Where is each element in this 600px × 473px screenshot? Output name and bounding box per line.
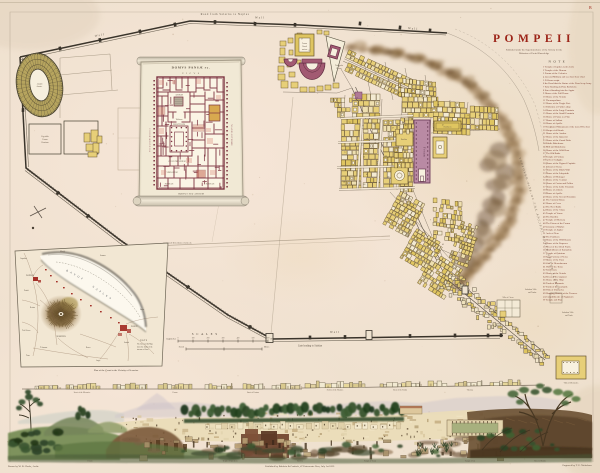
- svg-text:Forum: Forum: [88, 461, 93, 463]
- svg-text:Published by Baldwin & Cradock: Published by Baldwin & Cradock, 47 Pater…: [265, 465, 335, 468]
- svg-text:Basilica: Basilica: [401, 139, 407, 141]
- svg-text:Engraved by T. E. Nicholson.: Engraved by T. E. Nicholson.: [562, 464, 592, 467]
- svg-text:54: 54: [453, 255, 455, 257]
- svg-text:27: 27: [301, 38, 303, 40]
- svg-text:9: 9: [344, 152, 345, 154]
- svg-text:Plan of the Coast in the Vicin: Plan of the Coast in the Vicinity of Ves…: [94, 369, 138, 372]
- svg-text:300: 300: [222, 337, 225, 339]
- svg-text:1: 1: [365, 105, 366, 107]
- svg-text:V I C V S: V I C V S: [182, 72, 200, 75]
- svg-text:47: 47: [366, 174, 368, 176]
- svg-text:Diffusion of Useful Knowledge: Diffusion of Useful Knowledge: [519, 52, 549, 55]
- svg-text:32: 32: [360, 65, 362, 67]
- svg-text:62: 62: [363, 156, 365, 158]
- svg-text:0: 0: [178, 337, 179, 339]
- svg-text:PERISTYLIUM: PERISTYLIUM: [173, 124, 185, 126]
- svg-text:Resina: Resina: [30, 307, 35, 309]
- svg-text:PORTICUS: PORTICUS: [165, 184, 174, 186]
- svg-text:500: 500: [252, 337, 255, 339]
- svg-text:Suburban Villa: Suburban Villa: [525, 289, 537, 291]
- svg-text:N O T E: N O T E: [140, 340, 148, 342]
- svg-text:Thermae: Thermae: [467, 390, 474, 392]
- svg-text:21: 21: [422, 98, 424, 100]
- svg-text:and Tomb: and Tomb: [565, 315, 573, 317]
- svg-text:Scafati: Scafati: [124, 341, 129, 344]
- svg-text:Villa of Cicero: Villa of Cicero: [502, 296, 513, 299]
- svg-text:58: 58: [388, 176, 390, 178]
- svg-text:27: 27: [392, 128, 394, 130]
- svg-text:100: 100: [192, 337, 195, 339]
- svg-text:Suburban Villa: Suburban Villa: [562, 312, 574, 314]
- svg-text:HORTUS SEU ATRIUM: HORTUS SEU ATRIUM: [178, 193, 204, 196]
- svg-text:Vegetable: Vegetable: [41, 135, 49, 138]
- svg-text:streams of Lava: streams of Lava: [137, 348, 149, 351]
- svg-text:N O T E: N O T E: [548, 60, 565, 64]
- svg-text:200: 200: [207, 337, 210, 339]
- svg-text:Basilica: Basilica: [297, 461, 303, 463]
- svg-text:Pantheon: Pantheon: [444, 126, 452, 128]
- svg-text:Temple of Venus: Temple of Venus: [364, 460, 376, 463]
- svg-text:The lines on this Map: The lines on this Map: [137, 344, 153, 346]
- svg-text:Forum: Forum: [302, 43, 308, 45]
- svg-text:Villa of Diomedes: Villa of Diomedes: [564, 382, 579, 385]
- svg-text:Sarno: Sarno: [140, 309, 144, 311]
- svg-text:14: 14: [291, 66, 293, 68]
- svg-text:Nundi: Nundi: [302, 46, 307, 48]
- svg-text:Boarium: Boarium: [42, 142, 49, 144]
- svg-text:Temple of Quietness: Temple of Quietness: [223, 460, 238, 463]
- svg-text:English Feet: English Feet: [166, 338, 176, 341]
- svg-text:PORTICUS: PORTICUS: [206, 184, 215, 186]
- svg-text:Forum: Forum: [423, 147, 426, 157]
- svg-text:T.Annunz.: T.Annunz.: [40, 346, 48, 349]
- svg-text:S C A L E S: S C A L E S: [192, 332, 218, 336]
- svg-text:Angri: Angri: [96, 359, 101, 362]
- svg-text:22: 22: [349, 122, 351, 124]
- svg-text:Street of the Mercuries: Street of the Mercuries: [74, 391, 91, 394]
- svg-text:Marigl.: Marigl.: [60, 250, 66, 253]
- svg-text:DOMVS PANSÆ sc.: DOMVS PANSÆ sc.: [172, 66, 211, 70]
- svg-text:60: 60: [364, 184, 366, 186]
- svg-text:12: 12: [467, 115, 469, 117]
- svg-text:49: 49: [388, 81, 390, 83]
- svg-text:Triangular: Triangular: [335, 64, 343, 67]
- svg-text:Road from Salerno to Naples: Road from Salerno to Naples: [201, 13, 250, 16]
- svg-text:26: 26: [374, 124, 376, 126]
- svg-text:15: 15: [375, 73, 377, 75]
- svg-text:52: 52: [350, 168, 352, 170]
- svg-text:NAUCE: NAUCE: [131, 325, 138, 328]
- svg-text:39: 39: [350, 137, 352, 139]
- svg-text:Drawn by W. B. Clarke, Archt.: Drawn by W. B. Clarke, Archt.: [8, 465, 39, 468]
- svg-text:show the limits of the: show the limits of the: [137, 345, 153, 348]
- svg-text:1000: 1000: [270, 339, 274, 341]
- svg-text:1: 1: [387, 142, 388, 144]
- svg-text:12: 12: [442, 124, 444, 126]
- svg-text:400: 400: [237, 337, 240, 339]
- svg-text:W Temple and Plan: W Temple and Plan: [543, 299, 563, 302]
- svg-text:Torre: Torre: [26, 355, 30, 357]
- svg-text:24: 24: [411, 91, 413, 93]
- svg-text:23: 23: [409, 198, 411, 200]
- svg-text:ATRIUM: ATRIUM: [175, 94, 183, 97]
- svg-text:26: 26: [405, 125, 407, 127]
- svg-text:T.del Greco: T.del Greco: [22, 330, 31, 332]
- svg-text:2: 2: [398, 87, 399, 89]
- svg-text:Capodim.: Capodim.: [20, 258, 28, 260]
- svg-text:40: 40: [421, 212, 423, 214]
- svg-text:VIRIDARIUM: VIRIDARIUM: [167, 171, 178, 174]
- svg-text:French: French: [179, 347, 184, 349]
- svg-text:Street of the Tombs: Street of the Tombs: [393, 389, 407, 392]
- svg-text:45: 45: [442, 244, 444, 246]
- svg-text:V I A D E L L E T E R M E: V I A D E L L E T E R M E: [230, 125, 233, 147]
- svg-text:Wall: Wall: [330, 330, 340, 334]
- svg-text:Amphi: Amphi: [37, 82, 43, 85]
- svg-text:Temple of Isis: Temple of Isis: [465, 460, 476, 463]
- svg-text:Gate leading to Stabiae: Gate leading to Stabiae: [298, 345, 323, 348]
- svg-text:Street of Tombs: Street of Tombs: [534, 460, 546, 463]
- svg-text:Wall: Wall: [255, 16, 265, 20]
- svg-text:19: 19: [366, 139, 368, 141]
- svg-text:Street of Fortune: Street of Fortune: [247, 391, 259, 394]
- svg-text:61: 61: [385, 156, 387, 158]
- svg-text:Tablinum: Tablinum: [176, 119, 183, 121]
- svg-text:POMPEII: POMPEII: [493, 33, 575, 45]
- svg-text:48: 48: [451, 111, 453, 113]
- svg-text:and Tombs: and Tombs: [528, 292, 537, 294]
- svg-text:V I C O L O D E I D O D I: V I C O L O D E I D O D I C I: [150, 128, 152, 152]
- svg-text:OECUS TRICLINIUM: OECUS TRICLINIUM: [169, 161, 186, 163]
- svg-text:52: 52: [434, 231, 436, 233]
- svg-text:narium: narium: [302, 49, 308, 51]
- svg-text:Portici: Portici: [24, 290, 29, 292]
- svg-text:17: 17: [309, 50, 311, 52]
- svg-text:5: 5: [457, 269, 458, 271]
- svg-text:B: B: [589, 5, 592, 10]
- svg-text:57: 57: [356, 97, 358, 99]
- svg-text:Bosco: Bosco: [86, 347, 91, 349]
- svg-text:68: 68: [437, 104, 439, 106]
- svg-text:Metres: Metres: [264, 347, 270, 349]
- svg-text:26: 26: [343, 182, 345, 184]
- svg-text:7: 7: [430, 220, 431, 222]
- svg-text:Forum: Forum: [173, 392, 178, 394]
- svg-text:68: 68: [351, 58, 353, 60]
- svg-text:Somma: Somma: [100, 255, 106, 257]
- svg-text:VESUVIUS: VESUVIUS: [56, 336, 65, 338]
- svg-text:Portico of the Theatres: Portico of the Theatres: [327, 389, 344, 392]
- svg-text:3: 3: [405, 151, 406, 153]
- svg-text:theatre: theatre: [37, 86, 43, 88]
- svg-text:47: 47: [479, 115, 481, 117]
- svg-text:Forum: Forum: [42, 139, 48, 141]
